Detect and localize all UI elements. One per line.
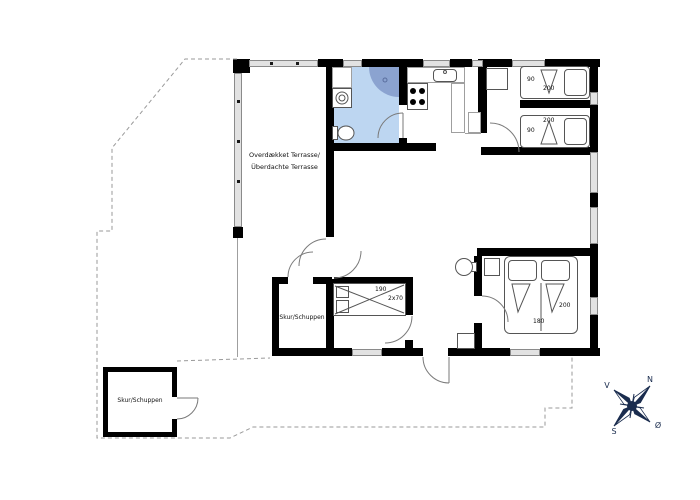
compass-arm-east: [632, 406, 650, 422]
bedroom1-pillow: [564, 69, 587, 96]
bunk-length-label: 190: [375, 286, 386, 294]
bedroom1-length-label: 200: [543, 85, 554, 93]
wood-stove: [455, 258, 473, 276]
detached-shed-label: Skur/Schuppen: [108, 395, 172, 406]
bedroom3-pillow-left: [508, 260, 537, 281]
compass-label-east: Ø: [655, 420, 661, 430]
wall-shed-top-b: [313, 277, 332, 284]
wall-bedroom3-left-b: [474, 323, 482, 348]
railing-top: [249, 60, 318, 67]
property-boundary-segment: [177, 358, 270, 361]
wall-top-5: [483, 59, 512, 67]
exterior-door-arc: [423, 357, 449, 383]
wall-bottom-3: [448, 348, 510, 356]
bunk-pillow-bottom: [336, 300, 349, 313]
terrace-label-line2: Überdachte Terrasse: [237, 162, 332, 173]
wall-shed-top-a: [272, 277, 288, 284]
bedroom3-wardrobe-in: [484, 258, 500, 276]
railing-post: [270, 62, 273, 65]
compass-arm-east: [632, 406, 650, 422]
bedroom3-width-label: 180: [533, 318, 544, 326]
compass-arm-south: [614, 406, 632, 426]
window-bottom-1: [352, 349, 382, 356]
terrace-label-line1: Overdækket Terrasse/: [237, 150, 332, 161]
railing-bottom-block: [233, 227, 243, 238]
bunkroom-door-arc: [385, 316, 412, 343]
window-right-3: [590, 207, 598, 244]
window-right-1: [590, 92, 598, 105]
wall-top-3: [362, 59, 423, 67]
detached-shed-door-arc: [177, 398, 198, 419]
bunk-size-label: 2x70: [388, 295, 403, 303]
compass-tick: [620, 404, 644, 408]
window-hall: [472, 60, 483, 67]
wall-bottom-4: [540, 348, 600, 356]
wall-right-1: [590, 59, 598, 92]
railing-post: [237, 140, 240, 143]
compass-arm-south: [614, 406, 632, 426]
wall-bunkroom-right: [405, 277, 413, 315]
wall-bedroom-divider: [520, 100, 598, 108]
wall-bath-right: [399, 59, 407, 105]
terrace-door-arc-left: [299, 239, 326, 266]
railing-post: [237, 180, 240, 183]
bedroom3-pillow-right: [541, 260, 570, 281]
window-bottom-2: [510, 349, 540, 356]
attached-shed-label: Skur/Schuppen: [272, 312, 332, 323]
bunk-pillow-top: [336, 286, 349, 298]
bedroom3-wardrobe-out: [457, 333, 475, 349]
wall-bunkroom-right-b: [405, 340, 413, 348]
compass-rose: N V S Ø: [604, 375, 661, 436]
wall-bedroom3-top: [477, 248, 598, 256]
kitchen-counter-right: [451, 83, 465, 133]
wall-right-2: [590, 105, 598, 152]
stove: [407, 83, 428, 110]
wall-top-4: [450, 59, 472, 67]
wall-bath-bottom: [326, 143, 436, 151]
wall-bedroom2-bottom: [481, 147, 598, 155]
compass-tick: [630, 394, 634, 418]
wall-bottom-2: [382, 348, 423, 356]
compass-label-north: N: [647, 375, 653, 384]
compass-label-west: V: [604, 381, 610, 390]
bedroom1-wardrobe: [486, 68, 508, 90]
terrace-edge-line: [237, 238, 238, 357]
bedroom3-length-label: 200: [559, 302, 570, 310]
bedroom1-width-label: 90: [527, 76, 535, 84]
detached-shed-door-gap: [171, 397, 178, 419]
window-bath: [343, 60, 362, 67]
window-right-4: [590, 297, 598, 315]
floor-plan: N V S Ø Overdækket Terrasse/ Überdachte …: [0, 0, 700, 500]
window-right-2: [590, 152, 598, 193]
hall-boundary-line: [465, 133, 481, 134]
toilet-tank: [332, 126, 338, 140]
terrace-door-arc-right: [334, 251, 361, 278]
compass-arm-north: [632, 386, 650, 406]
kitchen-sink: [433, 69, 457, 82]
bedroom2-width-label: 90: [527, 127, 535, 135]
wall-right-3: [590, 193, 598, 207]
bath-counter: [332, 67, 352, 88]
railing-post: [237, 100, 240, 103]
compass-arm-west: [614, 390, 632, 406]
bedroom2-length-label: 200: [543, 117, 554, 125]
compass-arm-north: [632, 386, 650, 406]
hall-cabinet: [468, 112, 481, 133]
railing-post: [296, 62, 299, 65]
wall-top-corner: [233, 59, 250, 73]
window-kitchen: [423, 60, 450, 67]
compass-arm-west: [614, 390, 632, 406]
washing-machine: [332, 88, 352, 108]
compass-center: [627, 401, 637, 411]
attached-shed-door-arc: [288, 252, 313, 277]
bedroom2-pillow: [564, 118, 587, 145]
compass-label-south: S: [611, 427, 616, 436]
wall-bottom-1: [272, 348, 352, 356]
